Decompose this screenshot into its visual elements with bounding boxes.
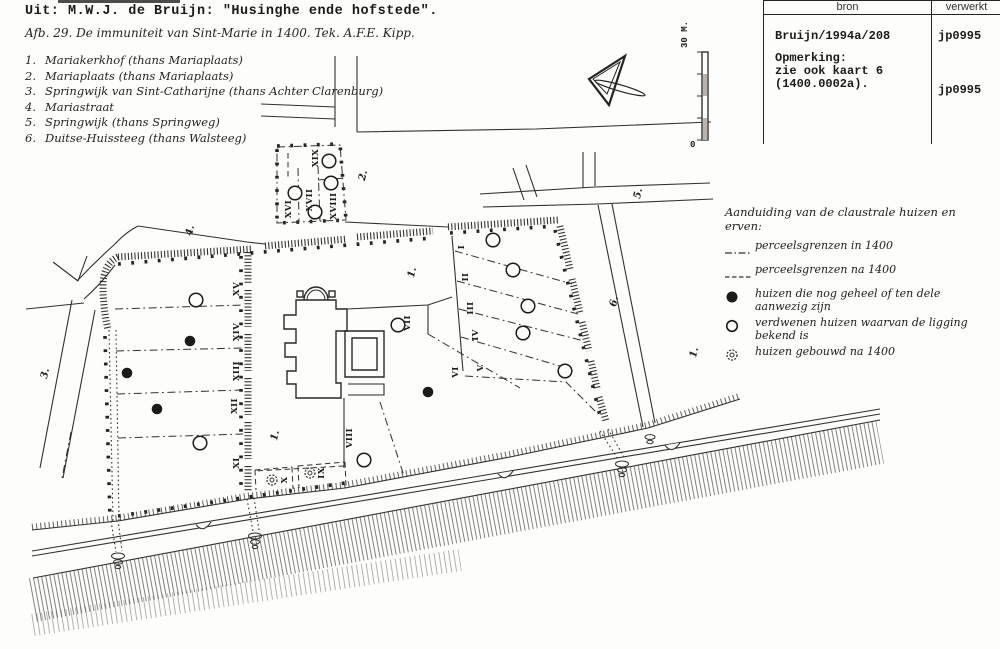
house-vanished-circle: [193, 436, 207, 450]
parcel-lines-east-block: [452, 236, 598, 414]
parcel-label: III: [466, 301, 476, 314]
street-lines-west: [26, 226, 265, 478]
parcel-label: IX: [317, 467, 327, 478]
parcel-label: IV: [471, 329, 481, 340]
house-vanished-circle: [189, 293, 203, 307]
house-vanished-circle: [288, 186, 302, 200]
parcel-label: XVI: [284, 200, 294, 218]
parcel-label: XIII: [232, 361, 242, 381]
parcel-label: XIV: [232, 323, 242, 341]
street-number-label: 5.: [632, 187, 645, 200]
west-wall-dotted: [109, 330, 119, 521]
hatched-circle-icon: [725, 346, 755, 366]
column-header-verwerkt: verwerkt: [932, 1, 1000, 14]
legend-item: perceelsgrenzen in 1400: [725, 240, 993, 260]
legend-title: Aanduiding van de claustrale huizen en e…: [725, 205, 993, 233]
remark-label: Opmerking:: [775, 51, 847, 65]
parcel-label: XVIII: [329, 192, 339, 219]
list-item: 4.Mariastraat: [25, 100, 383, 116]
verwerkt-entry-2: jp0995: [938, 83, 981, 97]
table-column-divider: [931, 14, 932, 144]
parcel-label: II: [461, 273, 471, 282]
open-circle-icon: [725, 317, 755, 337]
parcel-label: XII: [230, 398, 240, 414]
house-vanished-circle: [521, 299, 535, 313]
parcel-label: X: [280, 477, 290, 484]
scanned-map-page: 30 M. 0 IIIIIIIVVVIVIIVIIIIXXXIXIIXIIIXI…: [0, 0, 1000, 649]
canal-water-hatching: [33, 420, 880, 625]
parcel-label: I: [457, 245, 467, 249]
scale-bar: 30 M. 0: [680, 21, 708, 150]
scan-artifact: [58, 0, 180, 3]
dashdot-line-icon: [725, 240, 755, 260]
parcel-label: XVII: [305, 189, 315, 212]
remark-line: (1400.0002a).: [775, 77, 869, 91]
house-present-dot: [423, 387, 434, 398]
parcel-label: V: [476, 365, 486, 373]
house-vanished-circle: [324, 176, 338, 190]
parcel-label: VIII: [345, 428, 355, 449]
house-present-dot: [122, 368, 133, 379]
street-number-label: 1.: [688, 346, 701, 359]
parcel-lines-west-block: [115, 305, 243, 438]
church-footprint: [284, 287, 384, 398]
parcel-label: XIX: [311, 149, 321, 167]
dashed-line-icon: [725, 264, 755, 284]
street-number-label: 2.: [357, 169, 370, 182]
parcel-label: XV: [232, 282, 242, 296]
list-item: 1.Mariakerkhof (thans Mariaplaats): [25, 53, 383, 69]
house-vanished-circle: [516, 326, 530, 340]
parcel-label: VI: [451, 366, 461, 378]
catalog-table: bron verwerkt Bruijn/1994a/208 jp0995 Op…: [763, 0, 1000, 144]
street-number-label: 1.: [269, 429, 282, 442]
legend-item: perceelsgrenzen na 1400: [725, 264, 993, 284]
list-item: 3.Springwijk van Sint-Catharijne (thans …: [25, 84, 383, 100]
bron-entry: Bruijn/1994a/208: [775, 29, 890, 43]
street-number-label: 4.: [184, 224, 197, 237]
street-index-list: 1.Mariakerkhof (thans Mariaplaats) 2.Mar…: [25, 53, 383, 147]
house-after-1400-circle: [270, 478, 274, 482]
house-after-1400-circle: [267, 475, 277, 485]
list-item: 6.Duitse-Huissteeg (thans Walsteeg): [25, 131, 383, 147]
list-item: 2.Mariaplaats (thans Mariaplaats): [25, 69, 383, 85]
source-title: Uit: M.W.J. de Bruijn: "Husinghe ende ho…: [25, 4, 438, 19]
filled-circle-icon: [725, 288, 755, 308]
scale-top-label: 30 M.: [680, 21, 690, 48]
remark-line: zie ook kaart 6: [775, 64, 883, 78]
house-vanished-circle: [322, 154, 336, 168]
legend-item: huizen die nog geheel of ten dele aanwez…: [725, 288, 993, 313]
scale-zero-label: 0: [690, 140, 695, 150]
house-vanished-circle: [506, 263, 520, 277]
column-header-bron: bron: [764, 1, 932, 14]
house-vanished-circle: [558, 364, 572, 378]
parcel-label: XI: [232, 457, 242, 468]
legend-item: verdwenen huizen waarvan de ligging beke…: [725, 317, 993, 342]
street-number-label: 6.: [608, 295, 621, 308]
house-vanished-circle: [357, 453, 371, 467]
house-present-dot: [152, 404, 163, 415]
house-vanished-circle: [486, 233, 500, 247]
house-after-1400-circle: [305, 468, 315, 478]
house-after-1400-circle: [308, 471, 312, 475]
table-header: bron verwerkt: [764, 1, 1000, 15]
street-number-label: 1.: [406, 266, 419, 279]
verwerkt-entry-1: jp0995: [938, 29, 981, 43]
legend-item: huizen gebouwd na 1400: [725, 346, 993, 366]
north-arrow-icon: [589, 56, 646, 105]
map-legend: Aanduiding van de claustrale huizen en e…: [725, 205, 993, 370]
list-item: 5.Springwijk (thans Springweg): [25, 115, 383, 131]
street-number-label: 3.: [39, 367, 52, 380]
house-present-dot: [185, 336, 196, 347]
parcel-label: VII: [403, 315, 413, 332]
figure-caption: Afb. 29. De immuniteit van Sint-Marie in…: [25, 26, 415, 40]
